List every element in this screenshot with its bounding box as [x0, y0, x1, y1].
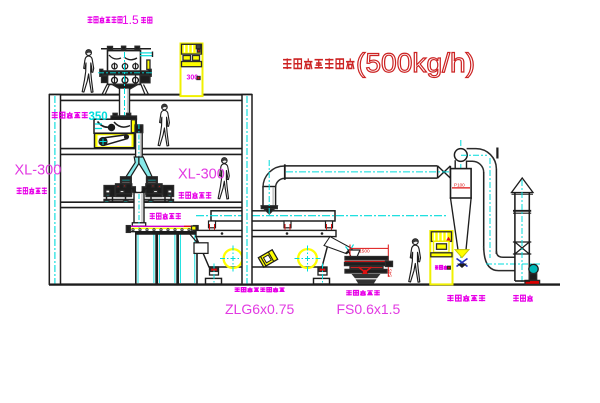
svg-text:(500kg/h): (500kg/h)	[356, 48, 475, 78]
svg-text:XL-300: XL-300	[15, 163, 62, 179]
svg-text:350: 350	[89, 111, 108, 123]
svg-text:545: 545	[388, 269, 394, 277]
svg-text:FS0.6x1.5: FS0.6x1.5	[337, 301, 401, 317]
svg-text:XL-300: XL-300	[178, 167, 225, 183]
svg-text:1500: 1500	[359, 248, 370, 254]
svg-text:1.5: 1.5	[122, 13, 139, 27]
svg-text:P100: P100	[454, 183, 465, 188]
svg-text:ZLG6x0.75: ZLG6x0.75	[225, 301, 294, 317]
